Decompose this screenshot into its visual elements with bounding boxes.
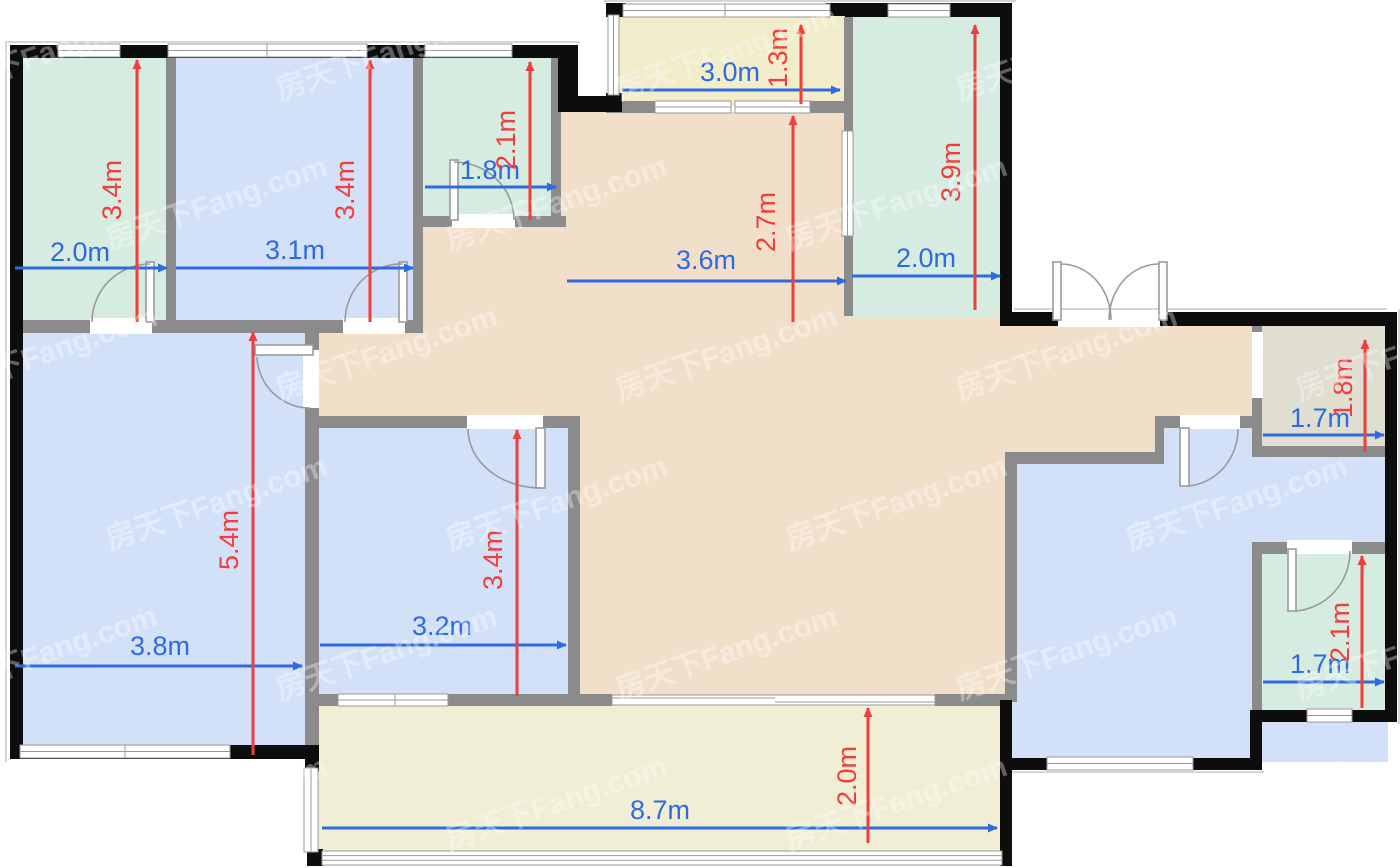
room-living: [15, 330, 307, 750]
dimension-label: 2.0m: [832, 746, 862, 806]
window: [1307, 709, 1352, 722]
dimension-label: 2.0m: [50, 237, 110, 267]
dimension-label: 3.1m: [265, 235, 325, 265]
floorplan-svg: 2.0m3.1m1.8m3.0m2.0m3.6m1.7m1.7m3.8m3.2m…: [0, 0, 1400, 868]
watermark-text: 房天下Fang.com: [1122, 150, 1352, 257]
dimension-label: 2.1m: [491, 110, 521, 170]
window: [888, 4, 950, 17]
dimension-label: 2.0m: [896, 243, 956, 273]
dimension-label: 8.7m: [630, 795, 690, 825]
dimension-label: 3.4m: [97, 160, 127, 220]
window: [322, 851, 1002, 865]
dimension-label: 2.1m: [1325, 602, 1355, 662]
window: [655, 101, 731, 113]
dimension-label: 3.6m: [676, 245, 736, 275]
sliding-door: [612, 695, 935, 705]
window: [338, 694, 448, 706]
floorplan-page: 2.0m3.1m1.8m3.0m2.0m3.6m1.7m1.7m3.8m3.2m…: [0, 0, 1400, 868]
watermark-text: 房天下Fang.com: [102, 750, 332, 857]
window: [20, 745, 230, 758]
watermark-text: 房天下Fang.com: [1292, 0, 1400, 107]
dimension-label: 2.7m: [751, 192, 781, 252]
window: [735, 101, 810, 113]
dimension-label: 3.4m: [330, 160, 360, 220]
window: [1047, 757, 1193, 770]
